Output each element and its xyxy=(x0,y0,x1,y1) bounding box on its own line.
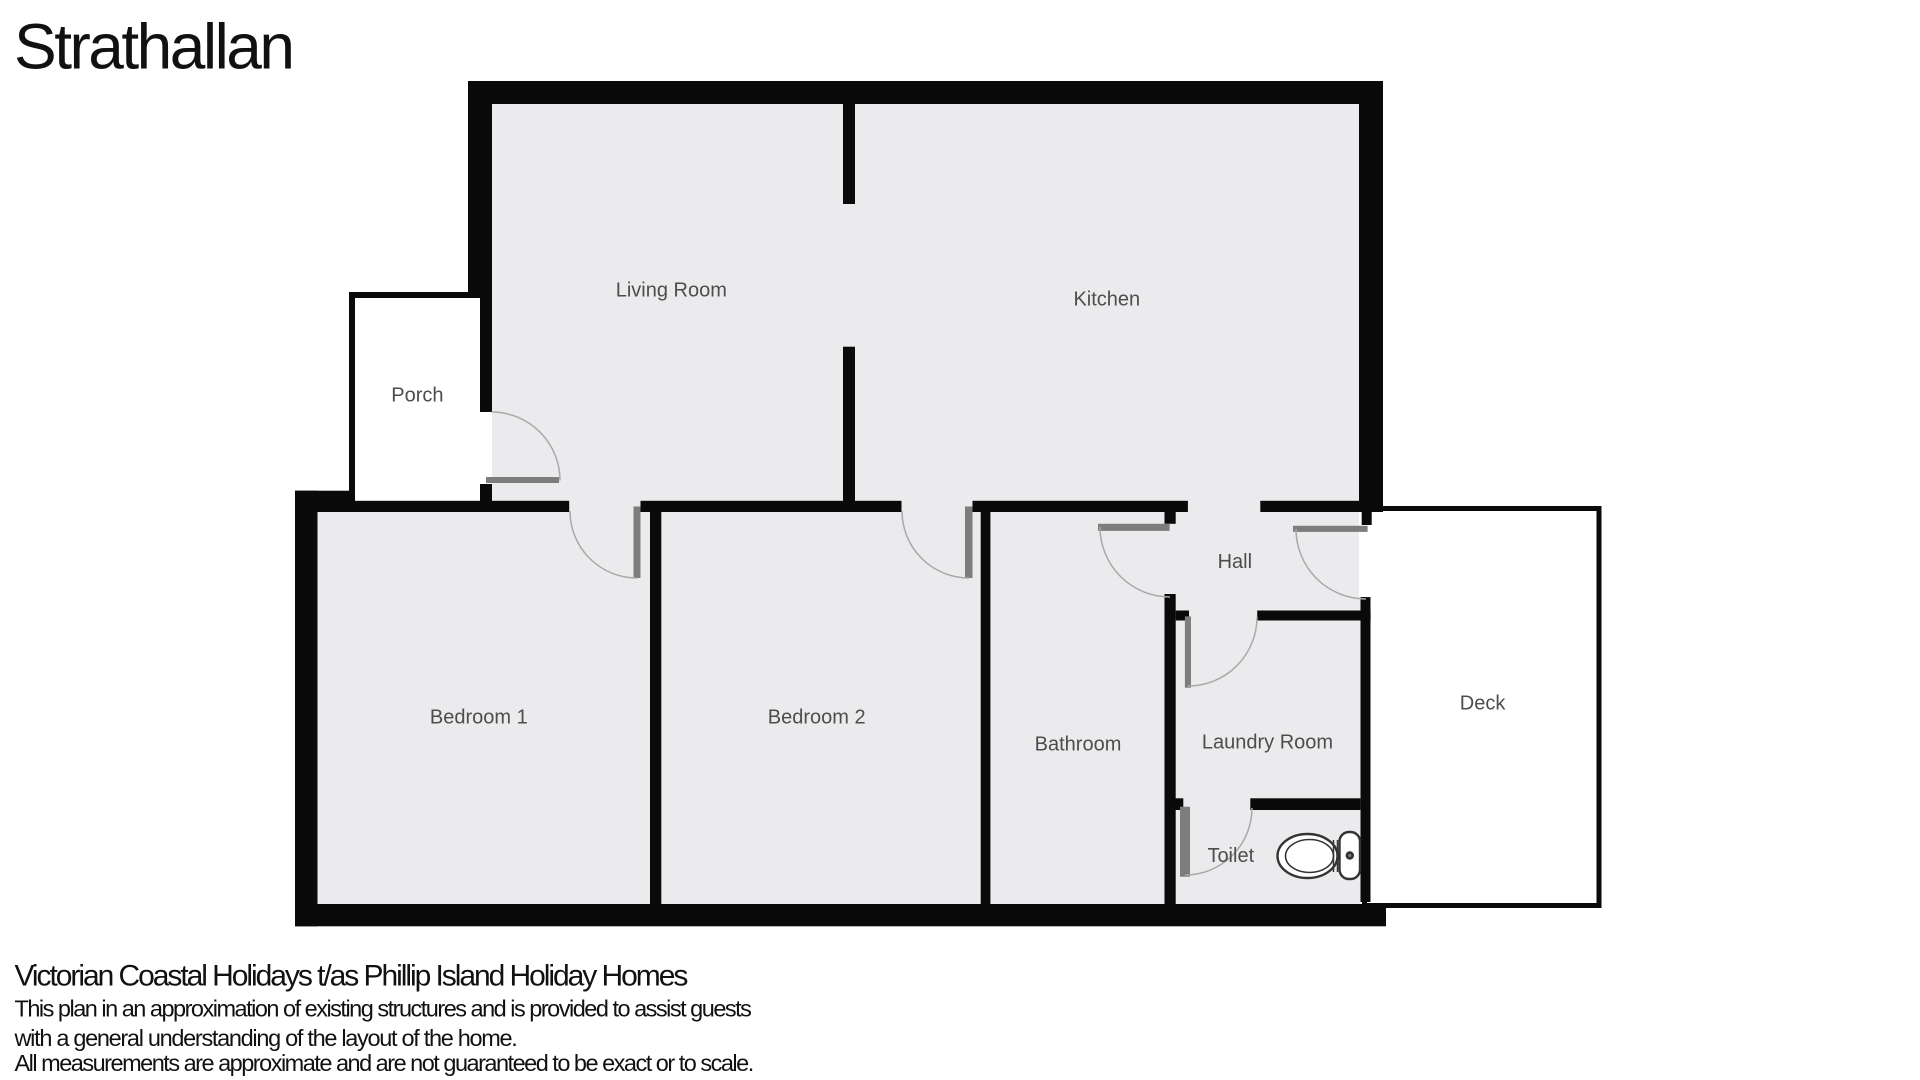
svg-text:Bathroom: Bathroom xyxy=(1035,734,1122,756)
svg-text:Hall: Hall xyxy=(1218,551,1252,573)
svg-text:Toilet: Toilet xyxy=(1207,845,1254,867)
svg-text:with a general understanding o: with a general understanding of the layo… xyxy=(14,1025,517,1051)
svg-text:Deck: Deck xyxy=(1460,693,1507,715)
svg-text:This plan in an approximation: This plan in an approximation of existin… xyxy=(15,996,752,1022)
svg-text:Living Room: Living Room xyxy=(616,279,727,301)
svg-text:Porch: Porch xyxy=(391,385,443,407)
svg-text:Bedroom 1: Bedroom 1 xyxy=(430,707,528,729)
svg-text:Strathallan: Strathallan xyxy=(14,11,292,83)
svg-text:Bedroom 2: Bedroom 2 xyxy=(768,707,866,729)
svg-text:Laundry Room: Laundry Room xyxy=(1202,732,1333,754)
svg-text:Kitchen: Kitchen xyxy=(1073,289,1140,311)
svg-text:Victorian Coastal Holidays t/a: Victorian Coastal Holidays t/as Phillip … xyxy=(15,959,688,992)
svg-text:All measurements are approxima: All measurements are approximate and are… xyxy=(15,1050,753,1076)
